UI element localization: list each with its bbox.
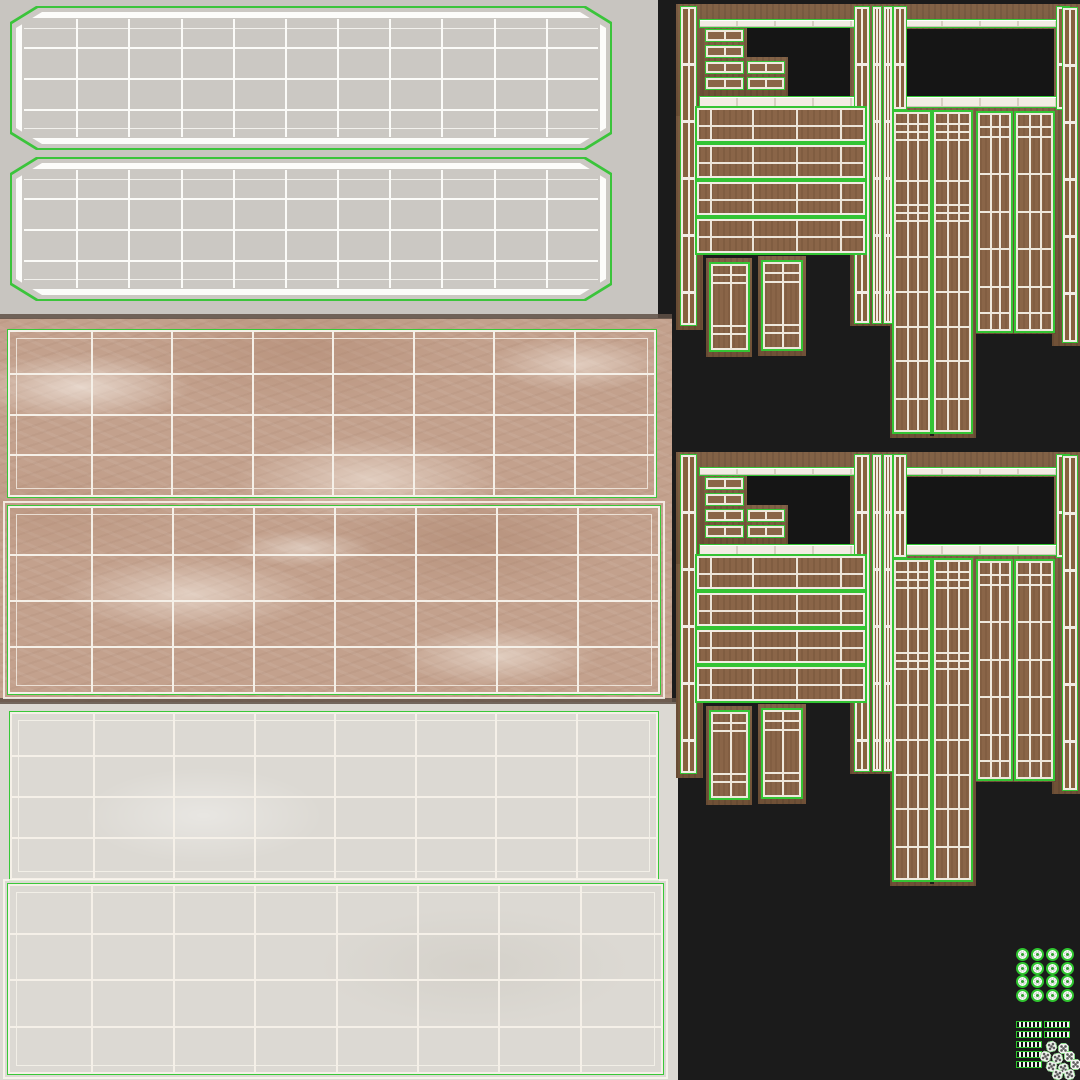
region-divider xyxy=(0,314,672,319)
frame-rail xyxy=(699,544,856,556)
wire-line xyxy=(12,755,656,757)
wire-line xyxy=(896,131,928,133)
wire-line xyxy=(947,562,949,878)
frame-rail xyxy=(699,96,856,108)
wire-line xyxy=(782,712,784,795)
wire-line xyxy=(713,282,746,284)
wire-line xyxy=(947,114,949,430)
shelf-plank xyxy=(697,556,865,589)
wire-line xyxy=(896,139,928,141)
drawer-front xyxy=(706,62,743,73)
door-panel xyxy=(934,560,971,880)
wire-line xyxy=(1018,621,1051,623)
wire-line xyxy=(999,115,1001,329)
wire-line xyxy=(936,628,969,630)
uv-disc-island xyxy=(1016,948,1029,961)
door-panel xyxy=(978,561,1011,779)
drawer-front xyxy=(748,510,784,521)
uv-disc-island xyxy=(1046,948,1059,961)
drawer-front xyxy=(748,526,784,537)
frame-post xyxy=(884,455,892,771)
wire-line xyxy=(936,571,969,573)
frame-post xyxy=(894,455,906,557)
wire-line xyxy=(936,668,969,670)
gray-panel-grid xyxy=(24,19,598,137)
wire-line xyxy=(896,846,928,848)
wire-line xyxy=(896,739,928,741)
wire-line xyxy=(1018,659,1051,661)
shelf-plank xyxy=(697,219,865,253)
door-panel xyxy=(894,560,930,880)
wire-line xyxy=(896,660,928,662)
wire-line xyxy=(936,123,969,125)
wire-line xyxy=(980,584,1009,586)
wire-line xyxy=(980,211,1009,213)
wire-line xyxy=(896,398,928,400)
wire-line xyxy=(907,114,909,430)
wire-line xyxy=(765,324,799,326)
frame-post xyxy=(681,455,696,773)
wire-line xyxy=(896,212,928,214)
wire-line xyxy=(917,114,919,430)
frame-post xyxy=(873,7,881,323)
wire-line xyxy=(936,660,969,662)
uv-disc-island xyxy=(1031,989,1044,1002)
wire-line xyxy=(10,454,654,456)
wire-line xyxy=(980,574,1009,576)
wire-line xyxy=(896,774,928,776)
wire-line xyxy=(24,229,598,231)
wire-line xyxy=(24,198,598,200)
uv-disc-island xyxy=(1031,948,1044,961)
wire-line xyxy=(1018,211,1051,213)
wire-line xyxy=(936,180,969,182)
wire-line xyxy=(1018,173,1051,175)
wire-line xyxy=(24,128,598,129)
wire-line xyxy=(896,587,928,589)
wire-line xyxy=(999,563,1001,777)
uv-disc-island xyxy=(1046,989,1059,1002)
drawer-front xyxy=(748,78,784,89)
wire-line xyxy=(936,579,969,581)
wire-line xyxy=(917,562,919,878)
door-panel xyxy=(934,112,971,432)
shelf-plank xyxy=(697,630,865,663)
uv-disc-island xyxy=(1046,975,1059,988)
wire-line xyxy=(765,772,799,774)
frame-opening xyxy=(906,29,1054,96)
drawer-front xyxy=(706,78,743,89)
flat-wireframe-panel xyxy=(8,506,660,694)
frame-opening xyxy=(906,477,1054,544)
wire-line xyxy=(936,587,969,589)
uv-disc-island xyxy=(1046,962,1059,975)
shelf-plank xyxy=(697,108,865,141)
wire-line xyxy=(765,272,799,274)
wire-line xyxy=(896,180,928,182)
wire-line xyxy=(12,796,656,798)
wire-line xyxy=(980,659,1009,661)
wire-line xyxy=(896,652,928,654)
gray-wireframe-panel xyxy=(10,157,612,301)
wire-line xyxy=(10,979,661,981)
wire-line xyxy=(713,333,746,335)
wire-line xyxy=(765,332,799,334)
wire-line xyxy=(1018,312,1051,314)
drawer-front xyxy=(706,46,743,57)
wire-line xyxy=(1018,126,1051,128)
frame-rail xyxy=(904,467,1057,476)
uv-disc-island xyxy=(1016,975,1029,988)
wire-line xyxy=(1029,563,1031,777)
wire-line xyxy=(896,704,928,706)
wire-line xyxy=(936,739,969,741)
uv-stripe-bar xyxy=(1016,1051,1042,1058)
frame-post xyxy=(884,7,892,323)
uv-disc-island xyxy=(1061,989,1074,1002)
wire-line xyxy=(24,109,598,111)
door-panel xyxy=(1016,561,1053,779)
uv-disc-island xyxy=(1016,989,1029,1002)
uv-disc-island xyxy=(1061,948,1074,961)
wire-line xyxy=(936,326,969,328)
wire-line xyxy=(896,204,928,206)
wire-line xyxy=(10,933,661,935)
wire-line xyxy=(12,837,656,839)
wire-line xyxy=(936,139,969,141)
wire-line xyxy=(782,264,784,347)
wire-line xyxy=(10,646,658,648)
flat-wireframe-panel xyxy=(8,330,656,497)
wire-line xyxy=(24,260,598,262)
frame-rail xyxy=(904,96,1057,108)
wire-line xyxy=(980,173,1009,175)
wire-line xyxy=(980,621,1009,623)
wire-line xyxy=(980,136,1009,138)
wire-line xyxy=(980,734,1009,736)
uv-disc-island xyxy=(1061,975,1074,988)
wire-line xyxy=(1018,584,1051,586)
frame-post xyxy=(1063,8,1077,342)
uv-disc-island xyxy=(1031,975,1044,988)
wire-line xyxy=(713,325,746,327)
frame-rail xyxy=(699,467,856,476)
frame-rail xyxy=(699,19,856,28)
door-panel xyxy=(894,112,930,432)
wire-line xyxy=(1018,734,1051,736)
wire-line xyxy=(24,279,598,280)
uv-stripe-bar xyxy=(1016,1031,1042,1038)
wire-line xyxy=(936,704,969,706)
wire-line xyxy=(896,808,928,810)
wire-line xyxy=(765,281,799,283)
wire-line xyxy=(1018,574,1051,576)
wire-line xyxy=(10,414,654,416)
uv-stripe-bar xyxy=(1044,1031,1070,1038)
wire-line xyxy=(24,179,598,180)
drawer-front xyxy=(706,510,743,521)
drawer-front xyxy=(706,526,743,537)
drawer-front xyxy=(748,62,784,73)
uv-disc-island xyxy=(1031,962,1044,975)
wire-line xyxy=(713,274,746,276)
uv-stripe-bar xyxy=(1044,1021,1070,1028)
small-door-panel xyxy=(711,712,748,798)
wire-line xyxy=(896,291,928,293)
wire-line xyxy=(765,720,799,722)
wire-line xyxy=(936,291,969,293)
small-door-panel xyxy=(763,262,801,349)
wire-line xyxy=(10,600,658,602)
uv-disc-island xyxy=(1016,962,1029,975)
wire-line xyxy=(936,204,969,206)
wire-line xyxy=(936,131,969,133)
frame-rail xyxy=(904,19,1057,28)
wire-line xyxy=(24,47,598,49)
shelf-plank xyxy=(697,593,865,626)
uv-disc-island xyxy=(1061,962,1074,975)
wire-line xyxy=(10,1026,661,1028)
wire-line xyxy=(958,562,960,878)
wire-line xyxy=(765,780,799,782)
wire-line xyxy=(1018,136,1051,138)
wire-line xyxy=(10,554,658,556)
wire-line xyxy=(896,571,928,573)
wire-line xyxy=(980,696,1009,698)
uv-stripe-bar xyxy=(1016,1061,1042,1068)
wire-line xyxy=(936,212,969,214)
gray-wireframe-panel xyxy=(10,6,612,150)
wire-line xyxy=(713,730,746,732)
wire-line xyxy=(730,714,732,796)
wire-line xyxy=(980,248,1009,250)
wire-line xyxy=(936,256,969,258)
wire-line xyxy=(896,256,928,258)
frame-post xyxy=(681,7,696,325)
wire-line xyxy=(980,126,1009,128)
door-panel xyxy=(1016,113,1053,331)
flat-wireframe-panel xyxy=(8,884,663,1074)
wire-line xyxy=(936,808,969,810)
door-panel xyxy=(978,113,1011,331)
wire-line xyxy=(936,846,969,848)
wire-line xyxy=(1040,115,1042,329)
drawer-front xyxy=(706,30,743,41)
wire-line xyxy=(896,220,928,222)
gray-panel-grid xyxy=(24,170,598,288)
wire-line xyxy=(896,123,928,125)
frame-post xyxy=(1063,456,1077,790)
wire-line xyxy=(980,286,1009,288)
wire-line xyxy=(896,360,928,362)
wire-line xyxy=(958,114,960,430)
flat-wireframe-panel xyxy=(10,712,658,880)
wire-line xyxy=(713,722,746,724)
texture-atlas-canvas xyxy=(0,0,1080,1080)
wire-line xyxy=(980,760,1009,762)
wire-line xyxy=(907,562,909,878)
small-door-panel xyxy=(763,710,801,797)
wire-line xyxy=(10,373,654,375)
wire-line xyxy=(936,398,969,400)
shelf-plank xyxy=(697,145,865,178)
wire-line xyxy=(936,220,969,222)
wire-line xyxy=(730,266,732,348)
wire-line xyxy=(713,773,746,775)
frame-rail xyxy=(904,544,1057,556)
wire-line xyxy=(936,652,969,654)
drawer-front xyxy=(706,478,743,489)
wire-line xyxy=(990,115,992,329)
wire-line xyxy=(1018,248,1051,250)
uv-stripe-bar xyxy=(1016,1021,1042,1028)
wire-line xyxy=(1018,696,1051,698)
uv-stripe-bar xyxy=(1016,1041,1042,1048)
wire-line xyxy=(1029,115,1031,329)
shelf-plank xyxy=(697,182,865,215)
drawer-front xyxy=(706,494,743,505)
wire-line xyxy=(1018,286,1051,288)
wire-line xyxy=(24,28,598,29)
wire-line xyxy=(713,781,746,783)
wire-line xyxy=(896,326,928,328)
wire-line xyxy=(1018,760,1051,762)
wire-line xyxy=(936,774,969,776)
wire-line xyxy=(990,563,992,777)
wire-line xyxy=(896,579,928,581)
wire-line xyxy=(765,729,799,731)
small-door-panel xyxy=(711,264,748,350)
wire-line xyxy=(936,360,969,362)
wire-line xyxy=(1040,563,1042,777)
shelf-plank xyxy=(697,667,865,701)
wire-line xyxy=(24,78,598,80)
frame-post xyxy=(894,7,906,109)
frame-post xyxy=(873,455,881,771)
wire-line xyxy=(980,312,1009,314)
wire-line xyxy=(896,628,928,630)
wire-line xyxy=(896,668,928,670)
